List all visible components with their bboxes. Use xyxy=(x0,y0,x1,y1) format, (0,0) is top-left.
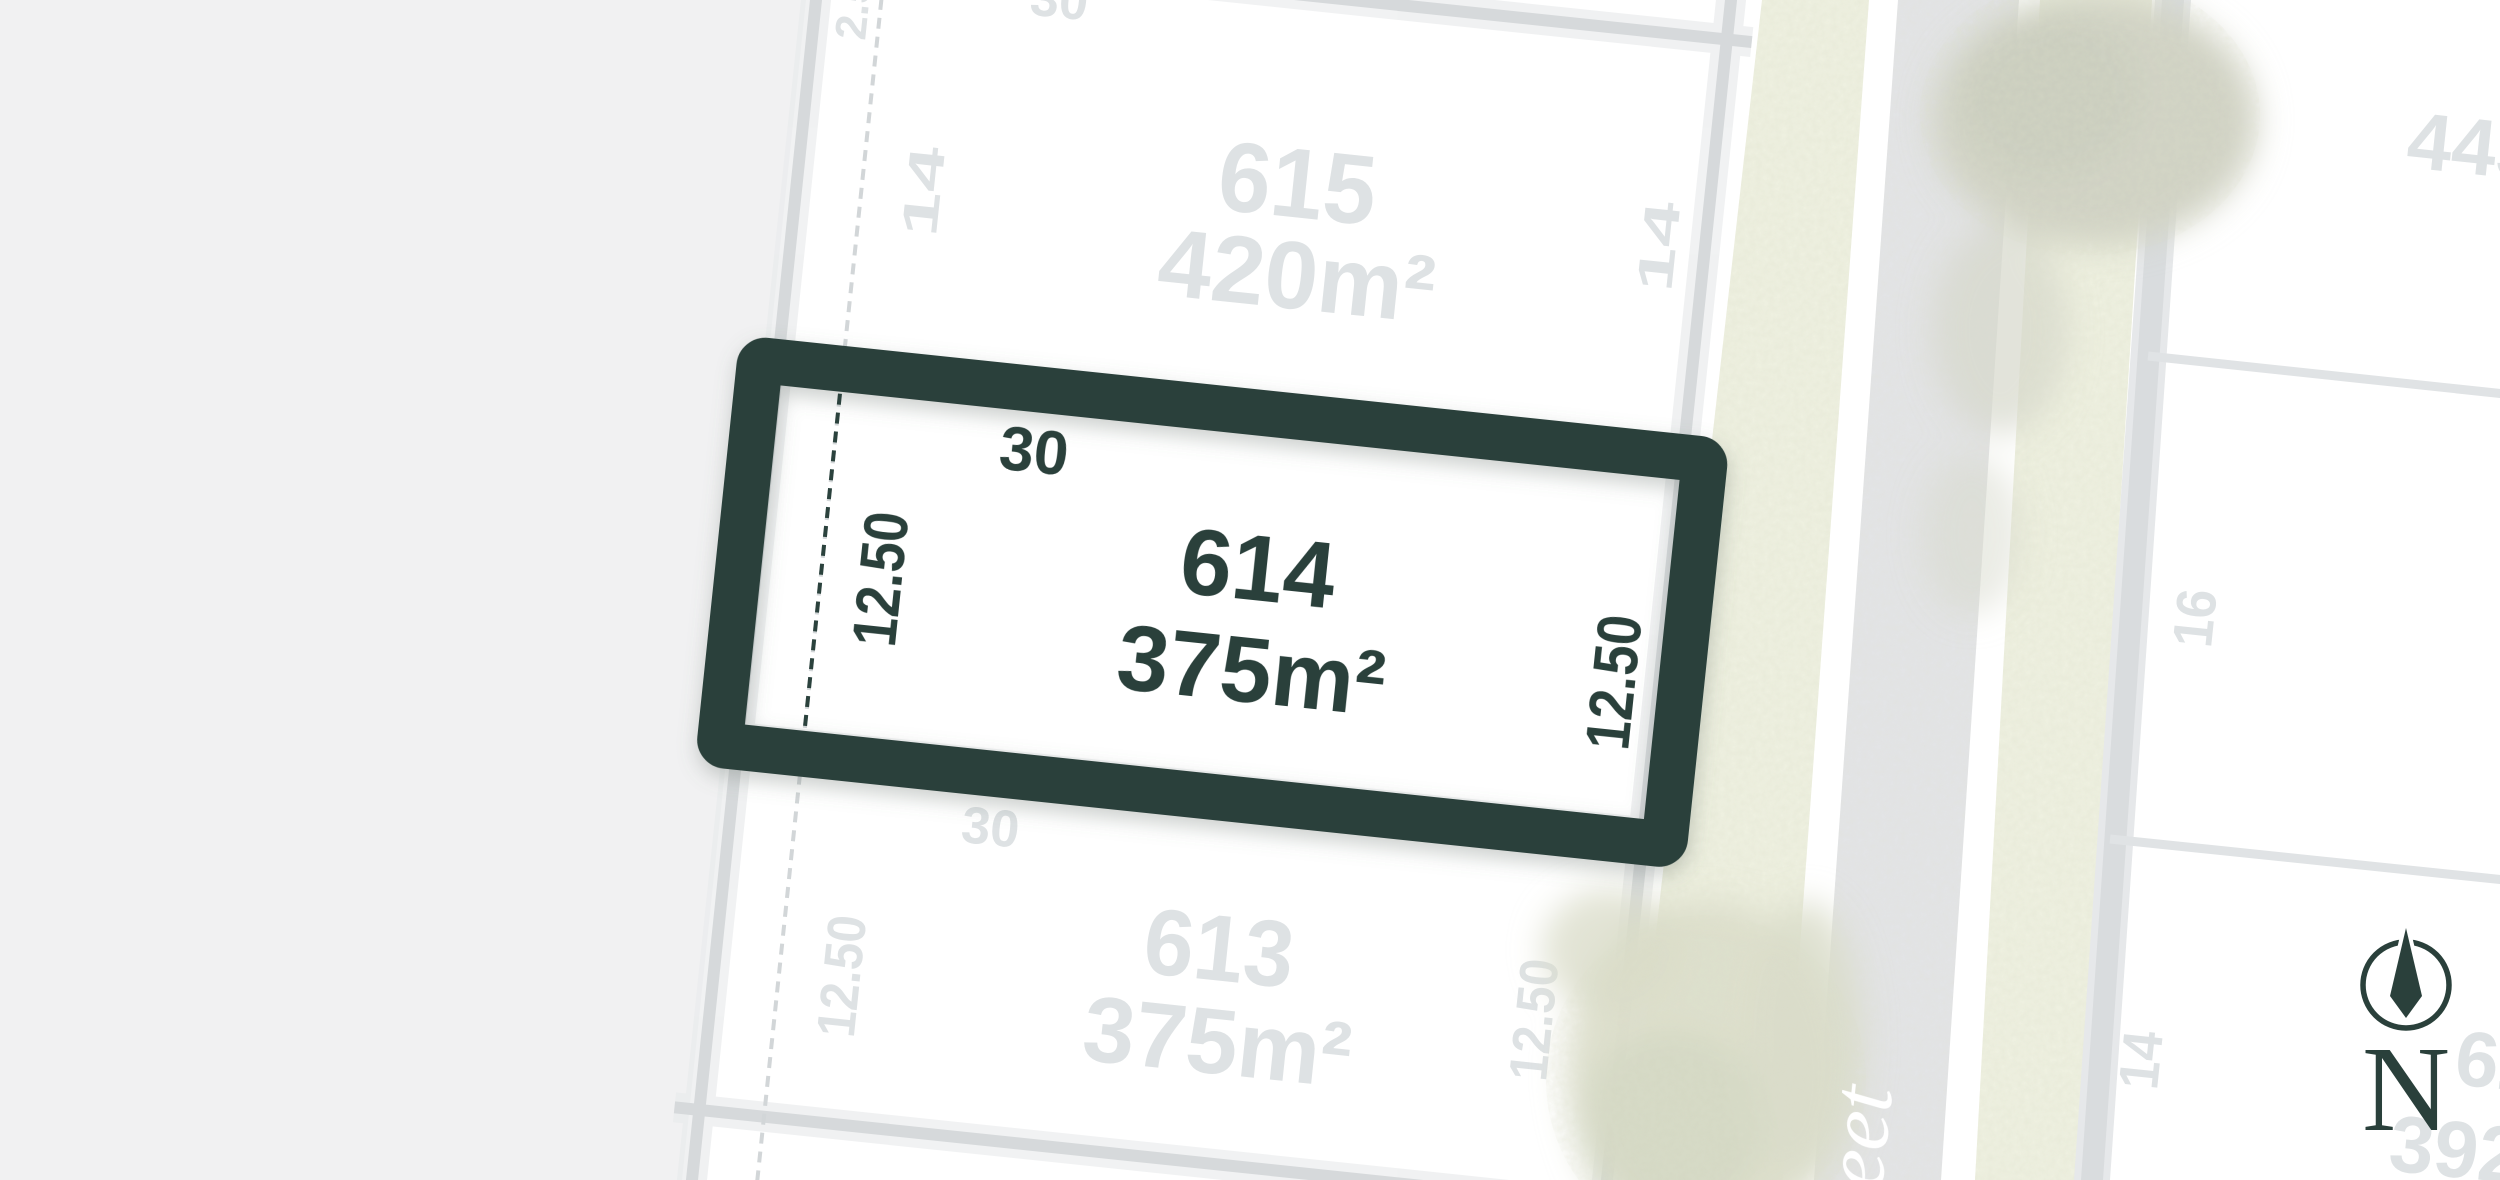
svg-text:614: 614 xyxy=(1175,508,1340,629)
svg-text:2.5: 2.5 xyxy=(826,0,881,42)
svg-text:N: N xyxy=(2362,1022,2450,1157)
svg-text:30: 30 xyxy=(996,414,1072,490)
svg-text:620: 620 xyxy=(2451,1013,2500,1114)
svg-text:14: 14 xyxy=(2106,1028,2175,1092)
svg-text:12.50: 12.50 xyxy=(806,912,878,1040)
svg-text:14: 14 xyxy=(891,143,956,239)
svg-text:14: 14 xyxy=(1626,199,1691,295)
svg-text:30: 30 xyxy=(959,796,1023,860)
svg-text:12.50: 12.50 xyxy=(1573,612,1656,753)
svg-text:12.50: 12.50 xyxy=(840,508,923,649)
svg-text:16: 16 xyxy=(2160,586,2229,650)
